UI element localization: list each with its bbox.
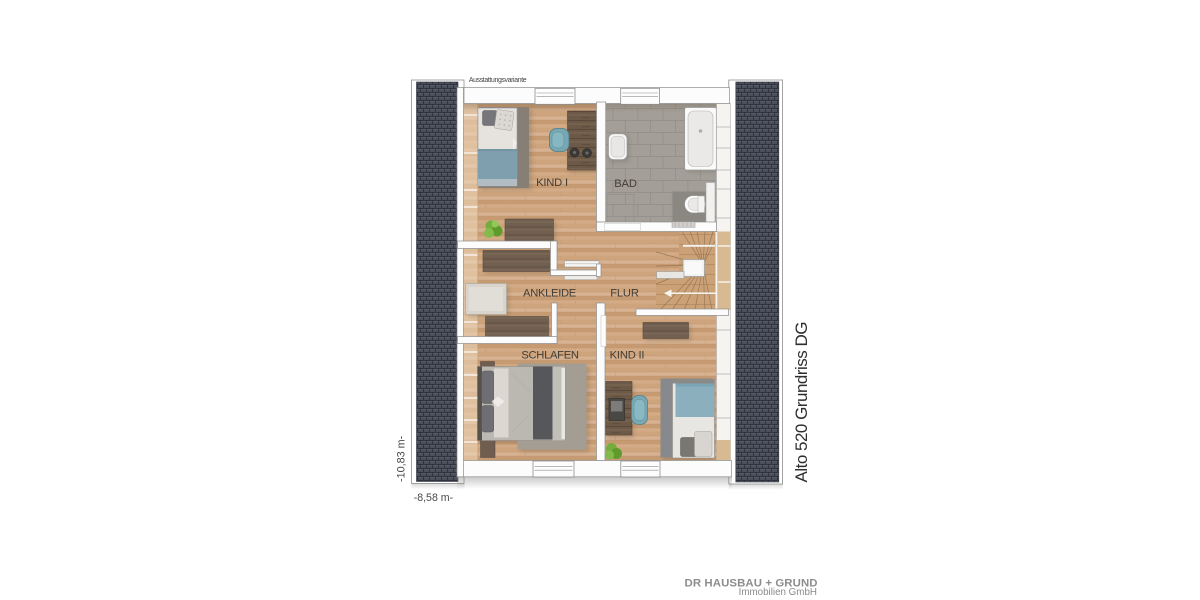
svg-text:-10,83 m-: -10,83 m-: [396, 435, 408, 482]
svg-text:ANKLEIDE: ANKLEIDE: [523, 288, 576, 300]
svg-text:KIND I: KIND I: [536, 177, 568, 189]
svg-text:Alto 520 Grundriss DG: Alto 520 Grundriss DG: [792, 322, 811, 483]
svg-text:FLUR: FLUR: [610, 288, 639, 300]
svg-text:Immobilien GmbH: Immobilien GmbH: [739, 587, 817, 598]
svg-text:KIND II: KIND II: [610, 350, 645, 362]
svg-text:BAD: BAD: [614, 178, 637, 190]
svg-text:-8,58 m-: -8,58 m-: [414, 492, 454, 504]
svg-text:Ausstattungsvariante: Ausstattungsvariante: [469, 77, 527, 84]
svg-text:SCHLAFEN: SCHLAFEN: [521, 350, 579, 362]
